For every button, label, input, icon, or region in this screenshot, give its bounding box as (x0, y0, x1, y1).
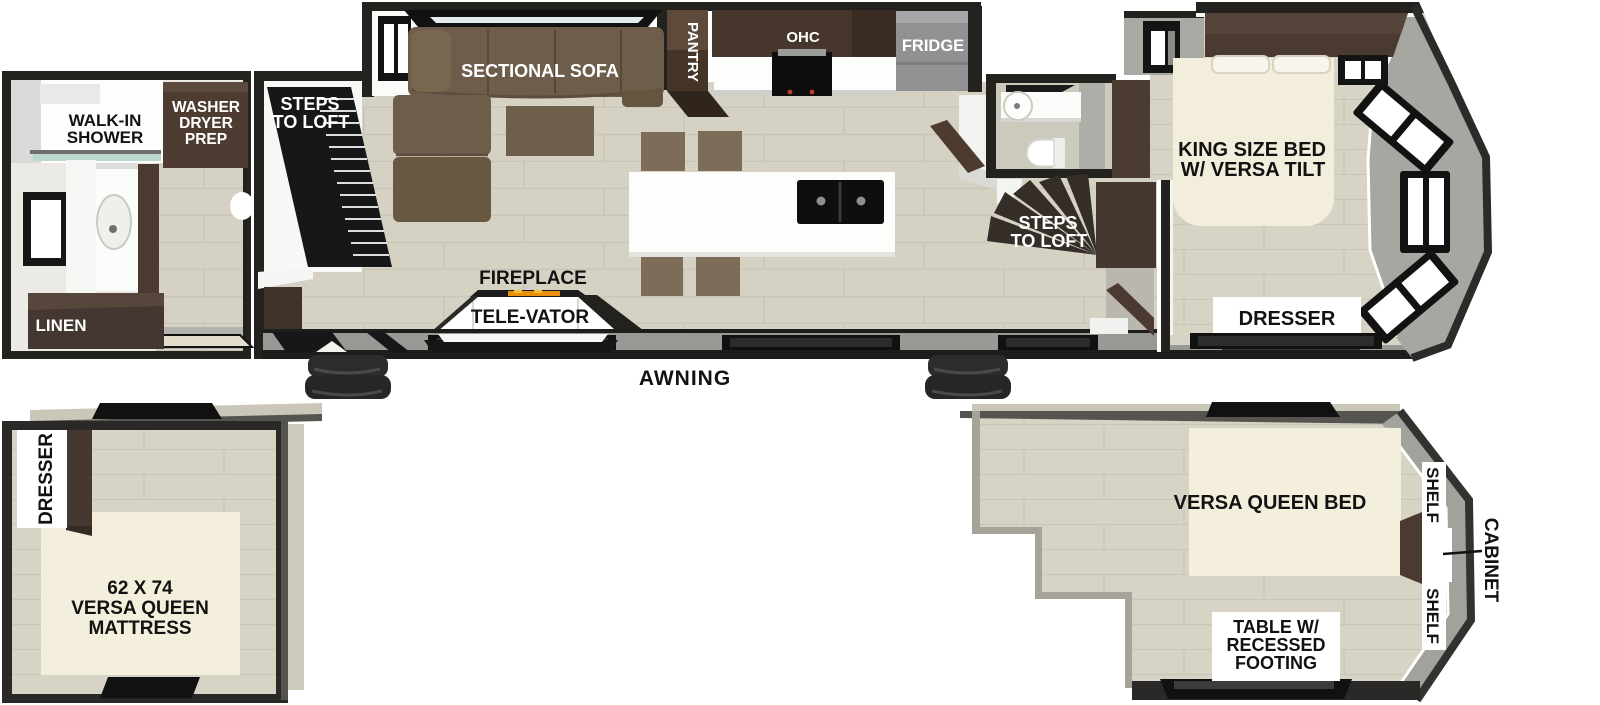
svg-text:RECESSED: RECESSED (1226, 635, 1325, 655)
svg-text:62 X 74: 62 X 74 (107, 578, 173, 599)
svg-text:MATTRESS: MATTRESS (88, 618, 191, 639)
svg-text:LINEN: LINEN (36, 316, 87, 335)
svg-text:VERSA QUEEN: VERSA QUEEN (71, 598, 209, 619)
svg-text:STEPS: STEPS (280, 94, 339, 114)
svg-text:TABLE W/: TABLE W/ (1233, 617, 1319, 637)
svg-text:SECTIONAL SOFA: SECTIONAL SOFA (461, 61, 619, 81)
svg-text:SHELF: SHELF (1423, 588, 1442, 644)
svg-text:FRIDGE: FRIDGE (902, 37, 964, 55)
svg-text:WASHER: WASHER (172, 99, 240, 116)
svg-text:STEPS: STEPS (1018, 213, 1077, 233)
svg-text:VERSA QUEEN BED: VERSA QUEEN BED (1174, 492, 1367, 514)
svg-text:PANTRY: PANTRY (684, 22, 701, 82)
svg-text:FIREPLACE: FIREPLACE (479, 268, 587, 289)
svg-text:W/ VERSA TILT: W/ VERSA TILT (1181, 159, 1325, 181)
svg-text:FOOTING: FOOTING (1235, 653, 1317, 673)
svg-text:PREP: PREP (185, 131, 227, 148)
svg-text:DRESSER: DRESSER (1239, 308, 1336, 330)
svg-text:KING SIZE BED: KING SIZE BED (1178, 139, 1326, 161)
svg-text:TELE-VATOR: TELE-VATOR (471, 307, 590, 328)
svg-text:TO LOFT: TO LOFT (273, 112, 350, 132)
svg-text:DRYER: DRYER (179, 115, 233, 132)
svg-text:TO LOFT: TO LOFT (1011, 231, 1088, 251)
svg-text:OHC: OHC (786, 29, 820, 46)
svg-text:AWNING: AWNING (639, 367, 731, 390)
svg-text:SHELF: SHELF (1423, 467, 1442, 523)
svg-text:SHOWER: SHOWER (67, 128, 144, 147)
svg-text:CABINET: CABINET (1480, 518, 1501, 603)
svg-text:DRESSER: DRESSER (36, 433, 57, 525)
